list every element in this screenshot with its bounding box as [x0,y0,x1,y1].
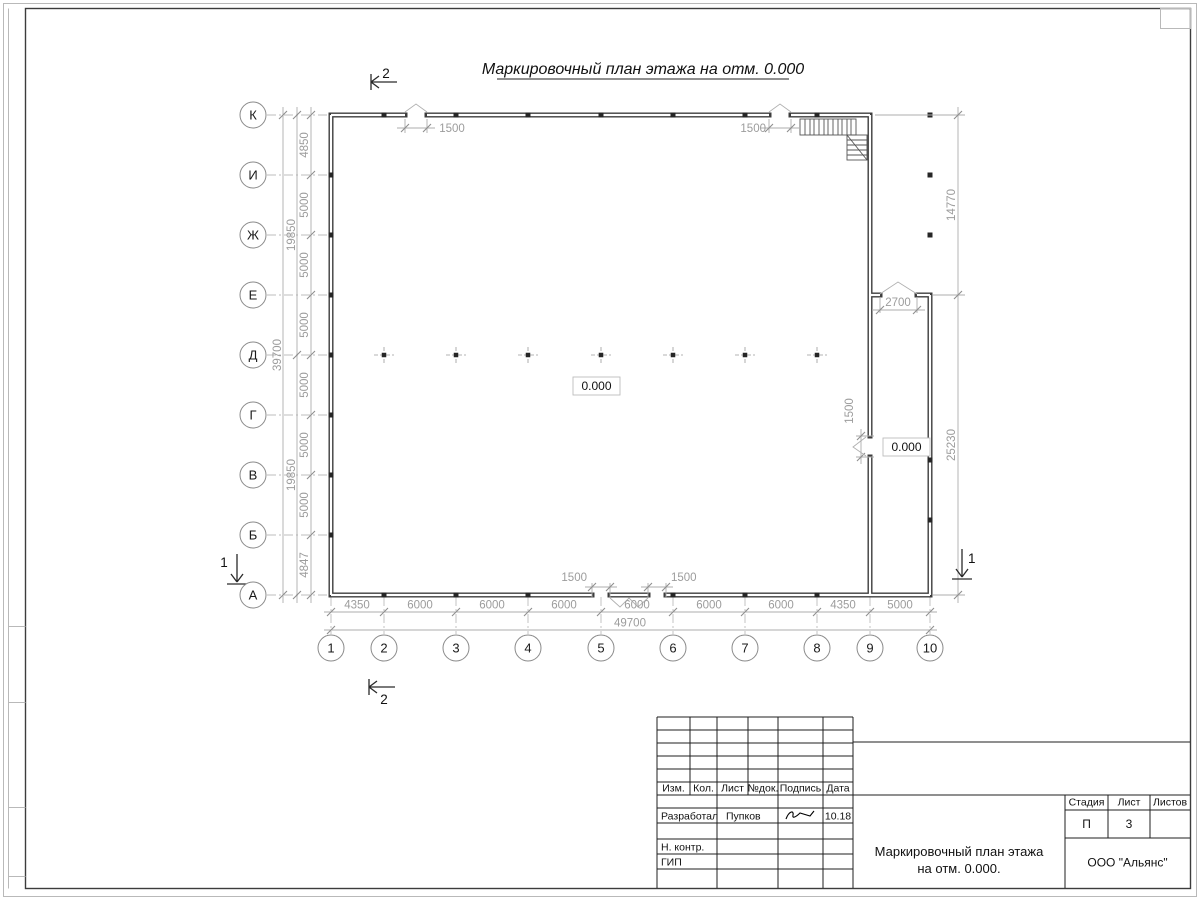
axis-row-G: Г [249,408,256,423]
dim-bottom-8: 4350 [830,600,856,612]
tb-company: ООО "Альянс" [1087,856,1167,870]
axis-row-D: Д [249,348,258,363]
dim-bottom-6: 6000 [696,600,722,612]
axis-col-6: 6 [669,641,676,656]
axis-row-V: В [249,468,258,483]
opening-symbols [405,104,917,607]
tb-col-ndok: №док. [748,783,779,795]
axis-col-7: 7 [741,641,748,656]
dim-right-lower: 25230 [946,429,958,461]
tb-developed-date: 10.18 [825,811,851,823]
tb-col-list: Лист [721,783,744,795]
staircase [800,119,867,160]
axis-row-A: А [249,588,258,603]
tb-stage-value: П [1082,817,1091,831]
left-margin-cells [9,9,26,889]
dim-top-opening-2: 1500 [740,123,766,135]
section-1-left: 1 [220,555,228,570]
tb-col-podpis: Подпись [780,783,822,795]
dim-right-upper: 14770 [946,189,958,221]
dim-left-1: 4850 [299,132,311,158]
dim-bottom-opening-2: 1500 [671,572,697,584]
axis-lines [267,115,930,634]
tb-sheet-value: 3 [1126,817,1133,831]
axis-row-I: И [248,168,257,183]
level-marks: 0.000 0.000 [573,377,930,456]
dim-left-half-lower: 19850 [286,459,298,491]
signature [786,811,814,819]
dim-left-total: 39700 [272,339,284,371]
level-main: 0.000 [581,379,611,393]
drawing-title: Маркировочный план этажа на отм. 0.000 [482,61,804,79]
dim-left-4: 5000 [299,312,311,338]
tb-doc-title-line1: Маркировочный план этажа [875,844,1044,859]
tb-col-data: Дата [826,783,849,795]
dim-bottom-3: 6000 [479,600,505,612]
section-2-bottom: 2 [380,692,388,707]
tb-developed-label: Разработал [661,811,718,823]
axis-col-5: 5 [597,641,604,656]
dim-right-opening: 1500 [844,398,856,424]
axis-col-4: 4 [524,641,531,656]
dimension-texts: 4850 5000 5000 5000 5000 5000 5000 4847 … [272,123,958,630]
dim-bottom-opening-1: 1500 [561,572,587,584]
axis-col-3: 3 [452,641,459,656]
dim-left-2: 5000 [299,192,311,218]
plan-title: Маркировочный план этажа на отм. 0.000 [482,61,804,78]
wall-columns [329,113,933,598]
dim-left-half-upper: 19850 [286,219,298,251]
axis-row-B: Б [249,528,258,543]
tb-col-izm: Изм. [662,783,685,795]
axis-col-1: 1 [327,641,334,656]
tb-gip-label: ГИП [661,857,682,869]
dim-left-3: 5000 [299,252,311,278]
axis-col-9: 9 [866,641,873,656]
interior-columns [374,347,827,363]
tb-sheets-label: Листов [1153,797,1188,809]
sheet-frame [4,4,1197,897]
tb-doc-title-line2: на отм. 0.000. [917,861,1000,876]
dim-bottom-9: 5000 [887,600,913,612]
walls [331,115,930,595]
drawing-sheet: Маркировочный план этажа на отм. 0.000 [0,0,1200,900]
tb-sheet-label: Лист [1118,797,1141,809]
section-1-right: 1 [968,551,976,566]
dim-left-8: 4847 [299,552,311,578]
axis-row-Zh: Ж [247,228,259,243]
tb-stage-label: Стадия [1069,797,1105,809]
floor-plan-svg: Маркировочный план этажа на отм. 0.000 [0,0,1200,900]
tb-col-kol: Кол. [693,783,714,795]
dim-top-opening-1: 1500 [439,123,465,135]
tb-ncontrol-label: Н. контр. [661,842,704,854]
axis-row-E: Е [249,288,258,303]
dim-annex-opening: 2700 [885,297,911,309]
section-2-top: 2 [382,66,390,81]
dim-bottom-5: 6000 [624,600,650,612]
dim-left-7: 5000 [299,492,311,518]
axis-col-10: 10 [923,641,937,656]
dim-bottom-4: 6000 [551,600,577,612]
dim-left-5: 5000 [299,372,311,398]
dim-bottom-2: 6000 [407,600,433,612]
corner-cell [1161,9,1191,29]
dim-bottom-7: 6000 [768,600,794,612]
dimension-lines [279,107,965,634]
title-block: Изм. Кол. Лист №док. Подпись Дата Разраб… [657,717,1190,888]
axis-row-K: К [249,108,257,123]
dim-bottom-1: 4350 [344,600,370,612]
row-axis-bubbles: К И Ж Е Д Г В Б А [240,102,266,608]
axis-col-8: 8 [813,641,820,656]
axis-col-2: 2 [380,641,387,656]
col-axis-bubbles: 1 2 3 4 5 6 7 8 9 10 [318,635,943,661]
tb-developed-name: Пупков [726,811,761,823]
dim-bottom-total: 49700 [614,618,646,630]
level-annex: 0.000 [891,440,921,454]
dim-left-6: 5000 [299,432,311,458]
